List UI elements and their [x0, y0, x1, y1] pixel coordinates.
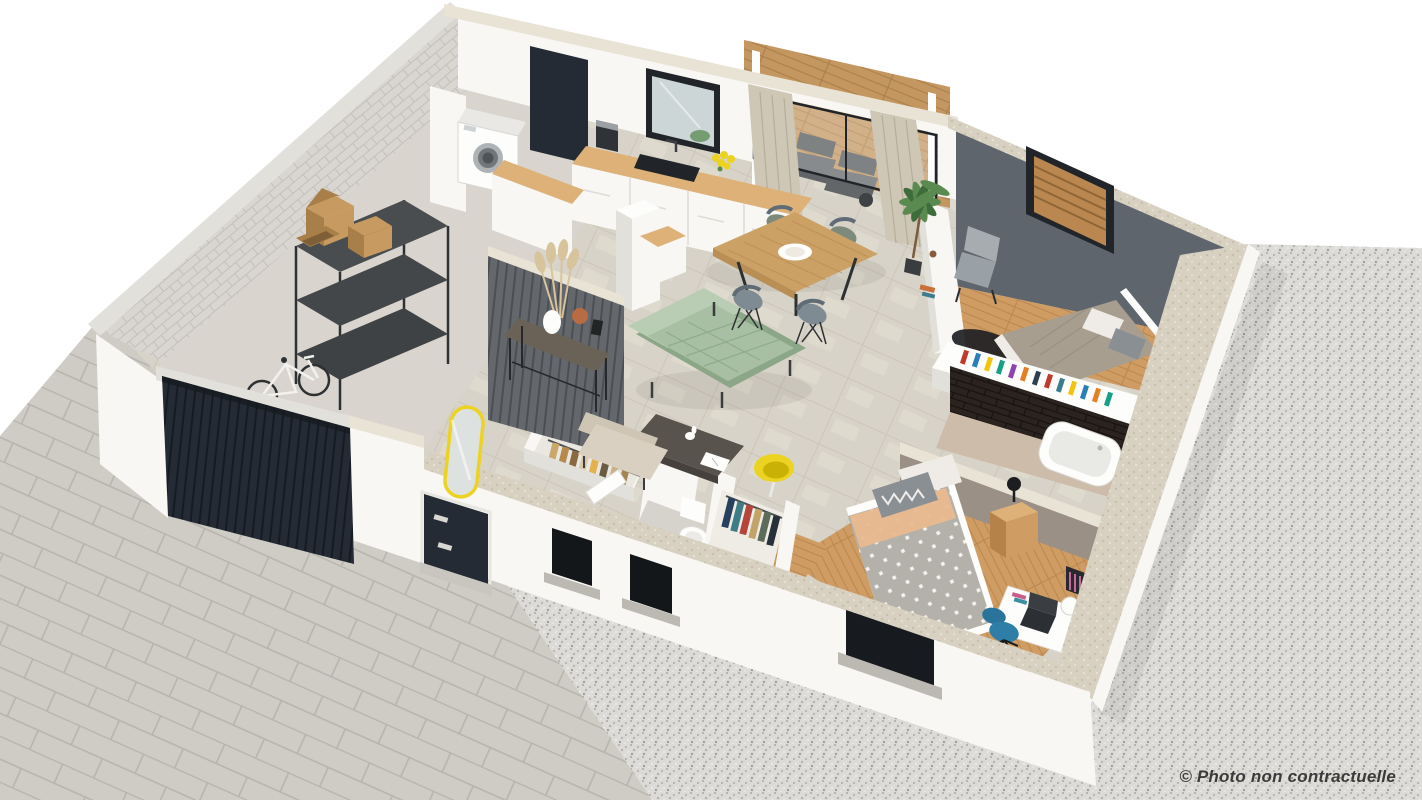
service-door-panel — [530, 46, 588, 164]
watermark-text: © Photo non contractuelle — [1179, 767, 1396, 787]
floorplan-scene — [0, 0, 1422, 800]
floorplan-render: © Photo non contractuelle — [0, 0, 1422, 800]
coffee-machine — [596, 120, 618, 152]
